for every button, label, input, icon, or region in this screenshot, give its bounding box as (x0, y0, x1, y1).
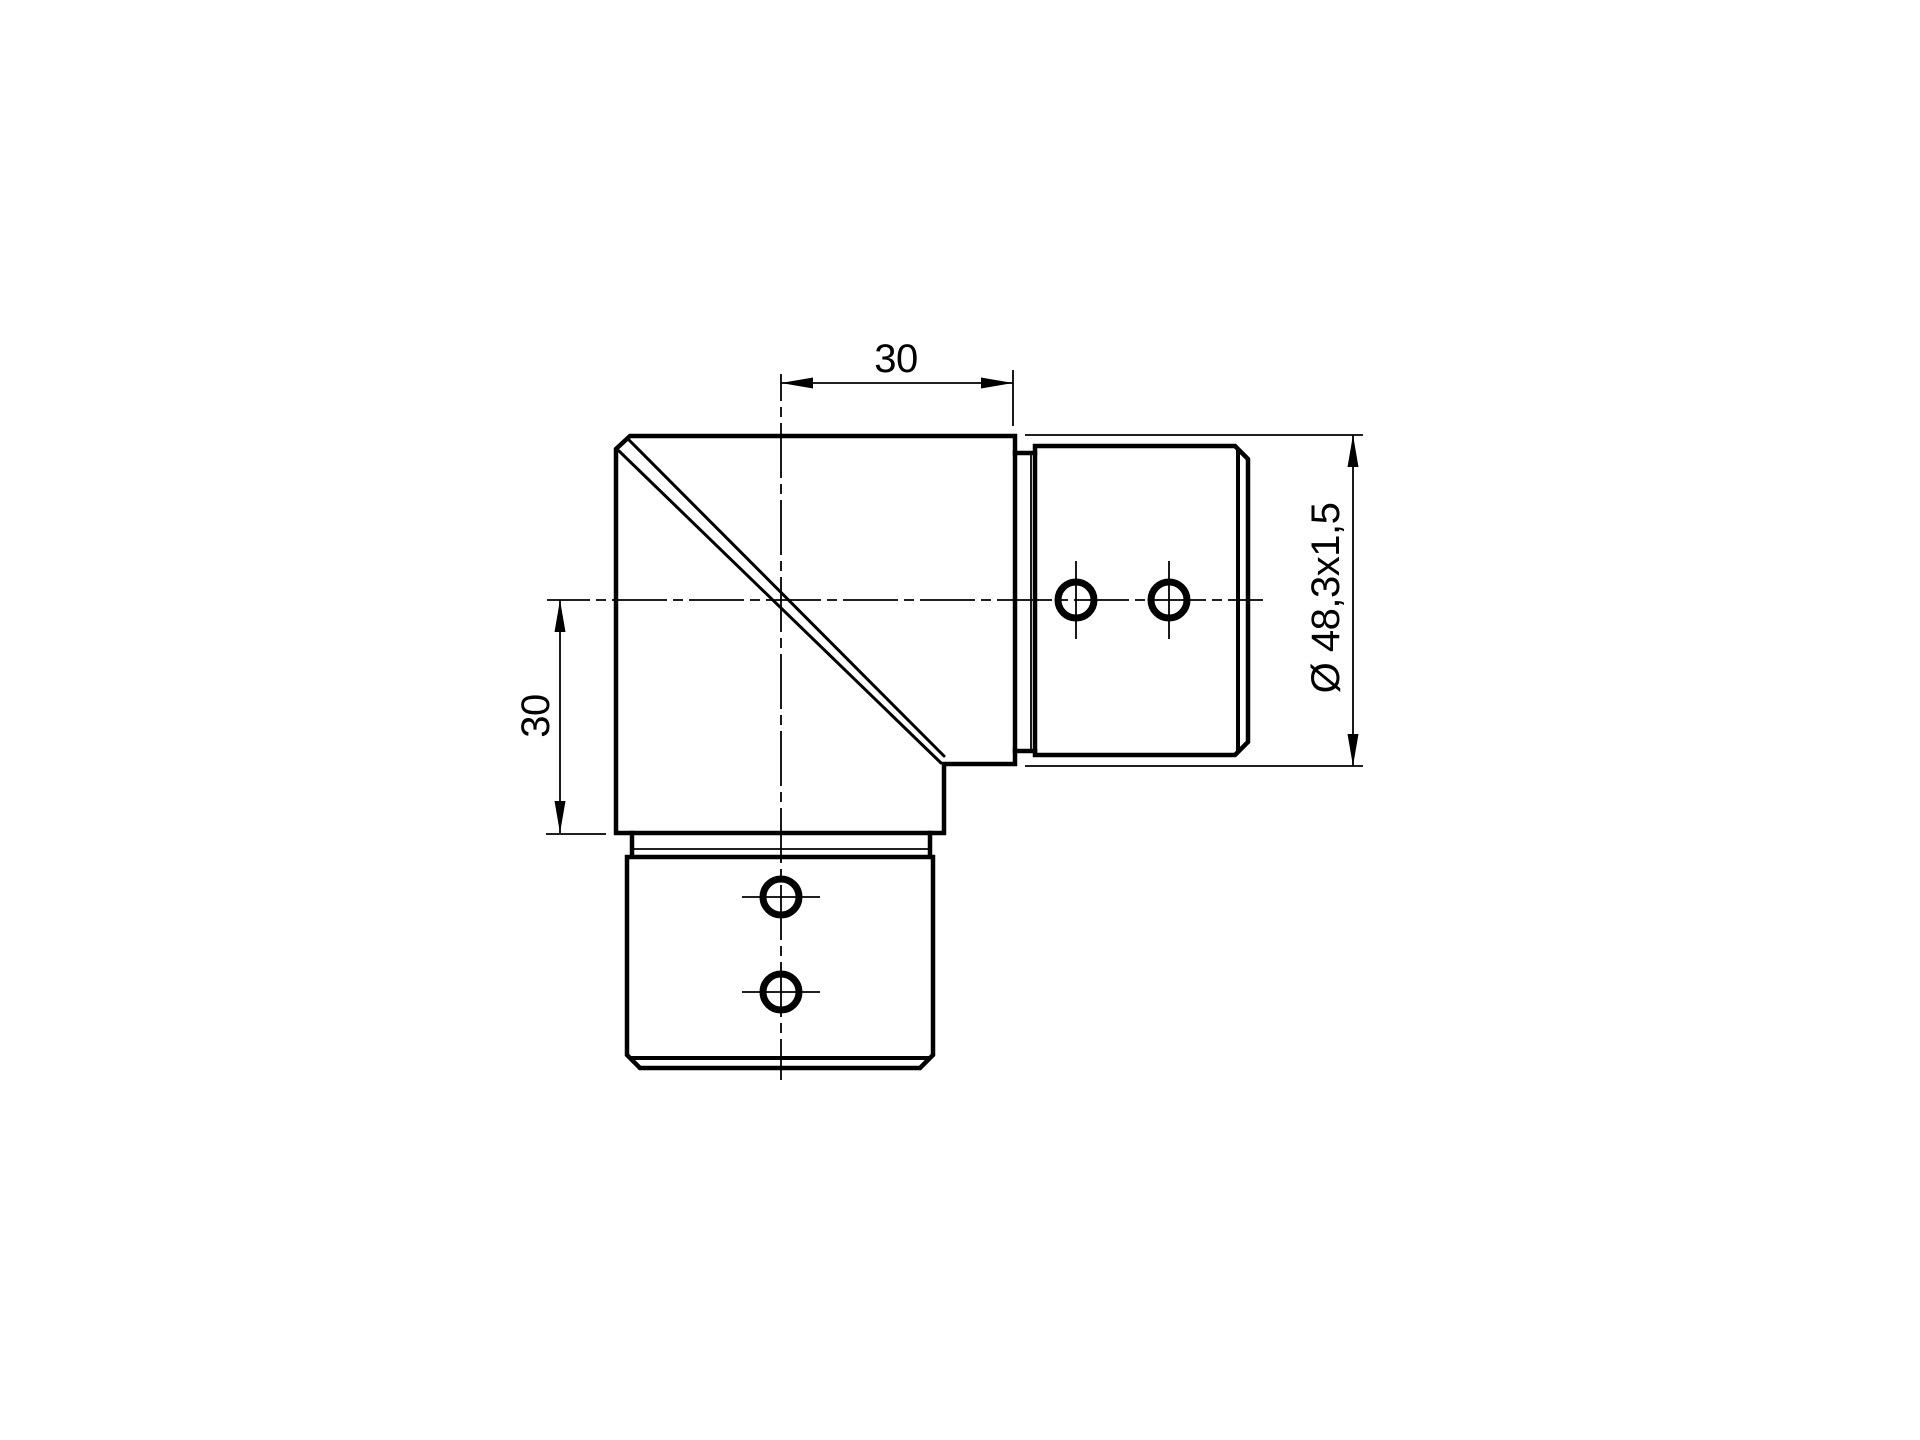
corner-body (616, 436, 1015, 833)
left-dim-arrow-bottom (555, 801, 566, 833)
corner-body-outline (616, 436, 1015, 833)
miter-seam-line-lower (619, 451, 941, 763)
left-dim-label: 30 (514, 694, 558, 738)
elbow-fitting-drawing: 30 30 Ø 48,3x1,5 (0, 0, 1920, 1440)
left-dim-arrow-top (555, 600, 566, 632)
bottom-branch (627, 833, 933, 1068)
drawing-canvas: 30 30 Ø 48,3x1,5 (0, 0, 1920, 1440)
miter-seam-line-upper (629, 440, 944, 756)
top-dim-arrow-right (981, 378, 1013, 389)
top-dim-arrow-left (781, 378, 813, 389)
bottom-branch-outline (627, 857, 933, 1068)
diameter-dim-arrow-top (1348, 435, 1359, 467)
top-dim-label: 30 (874, 337, 918, 381)
diameter-dim-arrow-bottom (1348, 734, 1359, 766)
dimension-left-height: 30 (514, 600, 606, 834)
diameter-dim-label: Ø 48,3x1,5 (1304, 503, 1348, 694)
dimension-top-width: 30 (781, 337, 1013, 426)
